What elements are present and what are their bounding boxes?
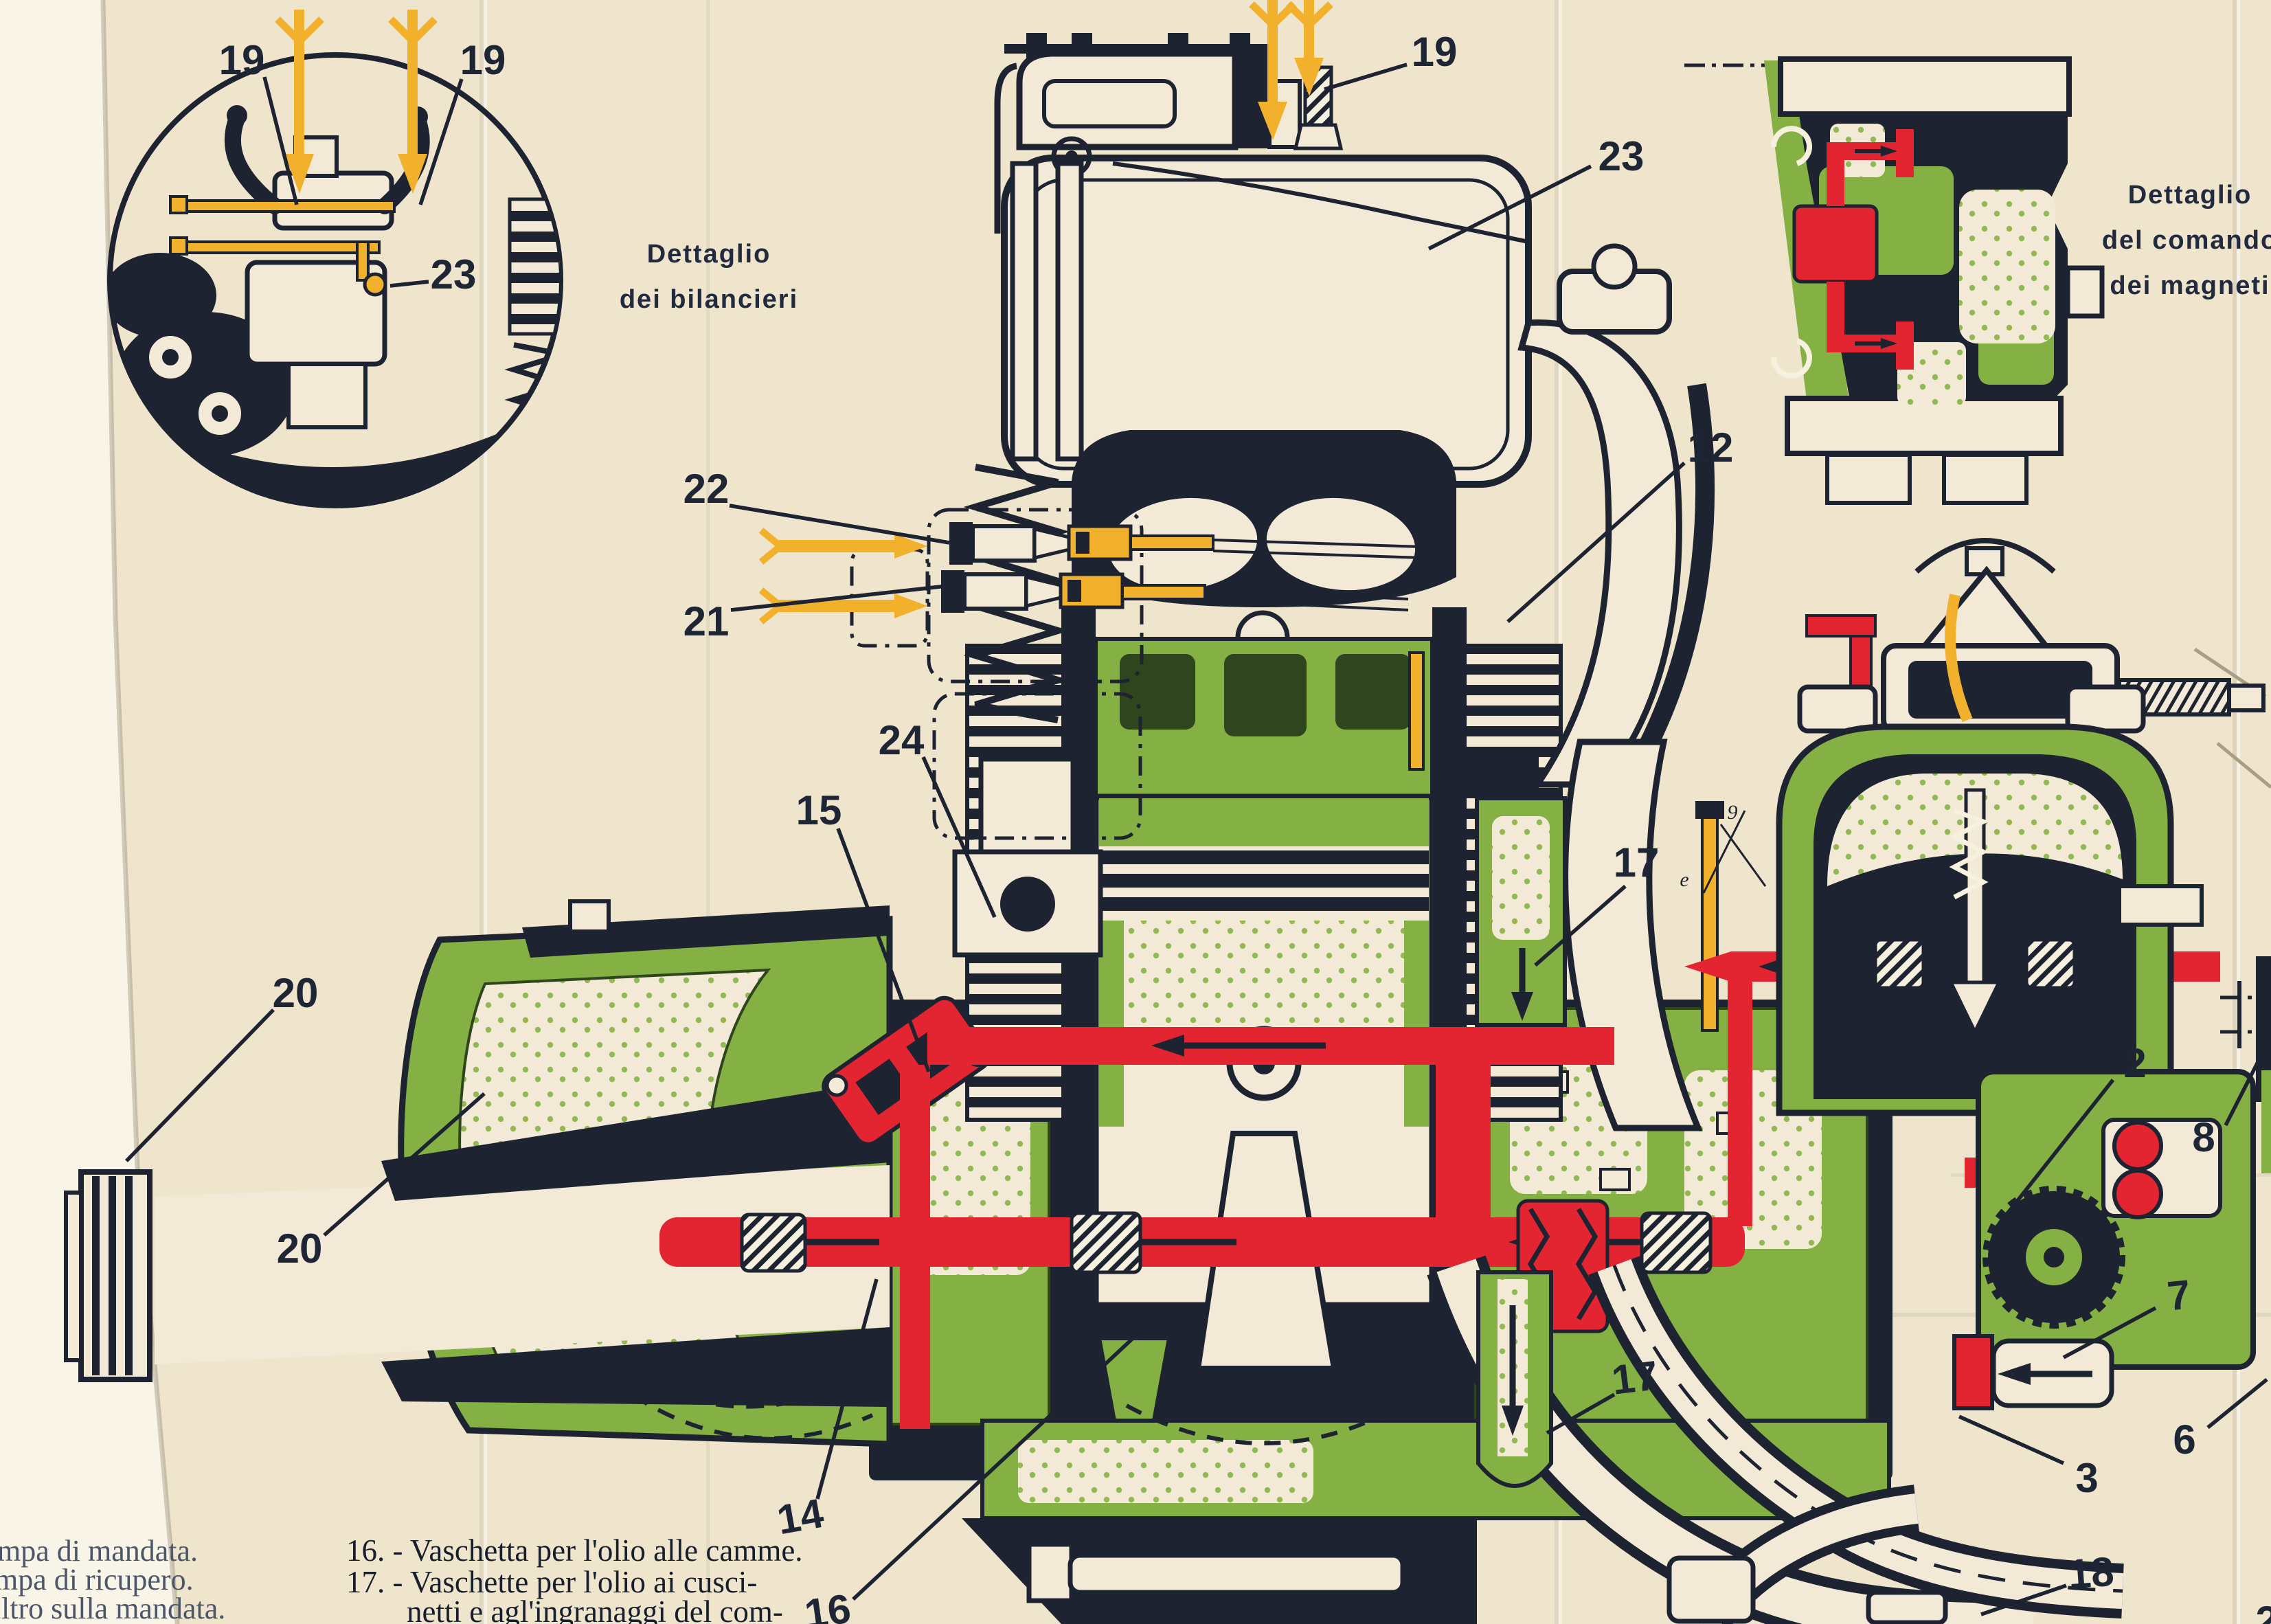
- engine-plate-figure: Dettaglio dei bilancieri Dettaglio del c…: [0, 0, 2271, 1624]
- callout-number-16: 16: [802, 1586, 853, 1624]
- callout-number-24: 24: [879, 717, 925, 763]
- callout-number-19-inset-right: 19: [460, 37, 506, 83]
- green-drain-channel: [1478, 1272, 1551, 1486]
- callout-number-2-corner: 2: [2255, 1598, 2271, 1624]
- rockers-title-line1: Dettaglio: [647, 240, 771, 269]
- magnets-title-line3: dei magneti: [2110, 271, 2270, 300]
- callout-number-19-top: 19: [1412, 29, 1458, 75]
- part-mark: e: [1680, 868, 1688, 891]
- callout-number-14: 14: [773, 1490, 827, 1544]
- caption-fragment: ltro sulla mandata.: [1, 1592, 225, 1624]
- magnets-title-line1: Dettaglio: [2128, 181, 2252, 210]
- callout-number-21: 21: [683, 598, 730, 644]
- callout-number-17-upper: 17: [1614, 839, 1660, 886]
- callout-number-18: 18: [2066, 1548, 2115, 1597]
- part-mark: 9: [1728, 801, 1738, 824]
- callout-number-17-lower: 17: [1609, 1352, 1660, 1403]
- callout-number-2: 2: [2123, 1040, 2146, 1086]
- oil-dipstick-yellow: [1702, 817, 1717, 1030]
- callout-number-8: 8: [2192, 1114, 2215, 1160]
- callout-number-12: 12: [1688, 425, 1734, 471]
- callout-number-20-upper: 20: [273, 970, 319, 1016]
- callout-number-23-top: 23: [1598, 133, 1645, 179]
- pump-gear-red: [2114, 1123, 2161, 1169]
- callout-number-7: 7: [2165, 1271, 2193, 1319]
- oil-pickup-plug: [1954, 1336, 2112, 1408]
- oil-gallery-yellow: [173, 201, 394, 212]
- oil-line-yellow: [1410, 653, 1423, 769]
- callout-number-3: 3: [2075, 1455, 2098, 1501]
- callout-number-6: 6: [2173, 1417, 2195, 1463]
- pump-gear-red: [2114, 1171, 2161, 1217]
- callout-number-19-inset-left: 19: [219, 37, 265, 83]
- sump-bolt: [1070, 1555, 1403, 1592]
- legend-item-17-cont: netti e agl'ingranaggi del com-: [407, 1594, 783, 1624]
- magnets-title-line2: del comando: [2102, 226, 2271, 255]
- callout-number-15: 15: [796, 787, 842, 833]
- callout-number-23-inset: 23: [431, 251, 477, 297]
- callout-number-20-lower: 20: [277, 1226, 323, 1272]
- rockers-title-line2: dei bilancieri: [620, 285, 798, 314]
- callout-number-22: 22: [683, 466, 730, 512]
- oil-nipple: [365, 274, 385, 295]
- legend-item-16: 16. - Vaschetta per l'olio alle camme.: [346, 1533, 803, 1568]
